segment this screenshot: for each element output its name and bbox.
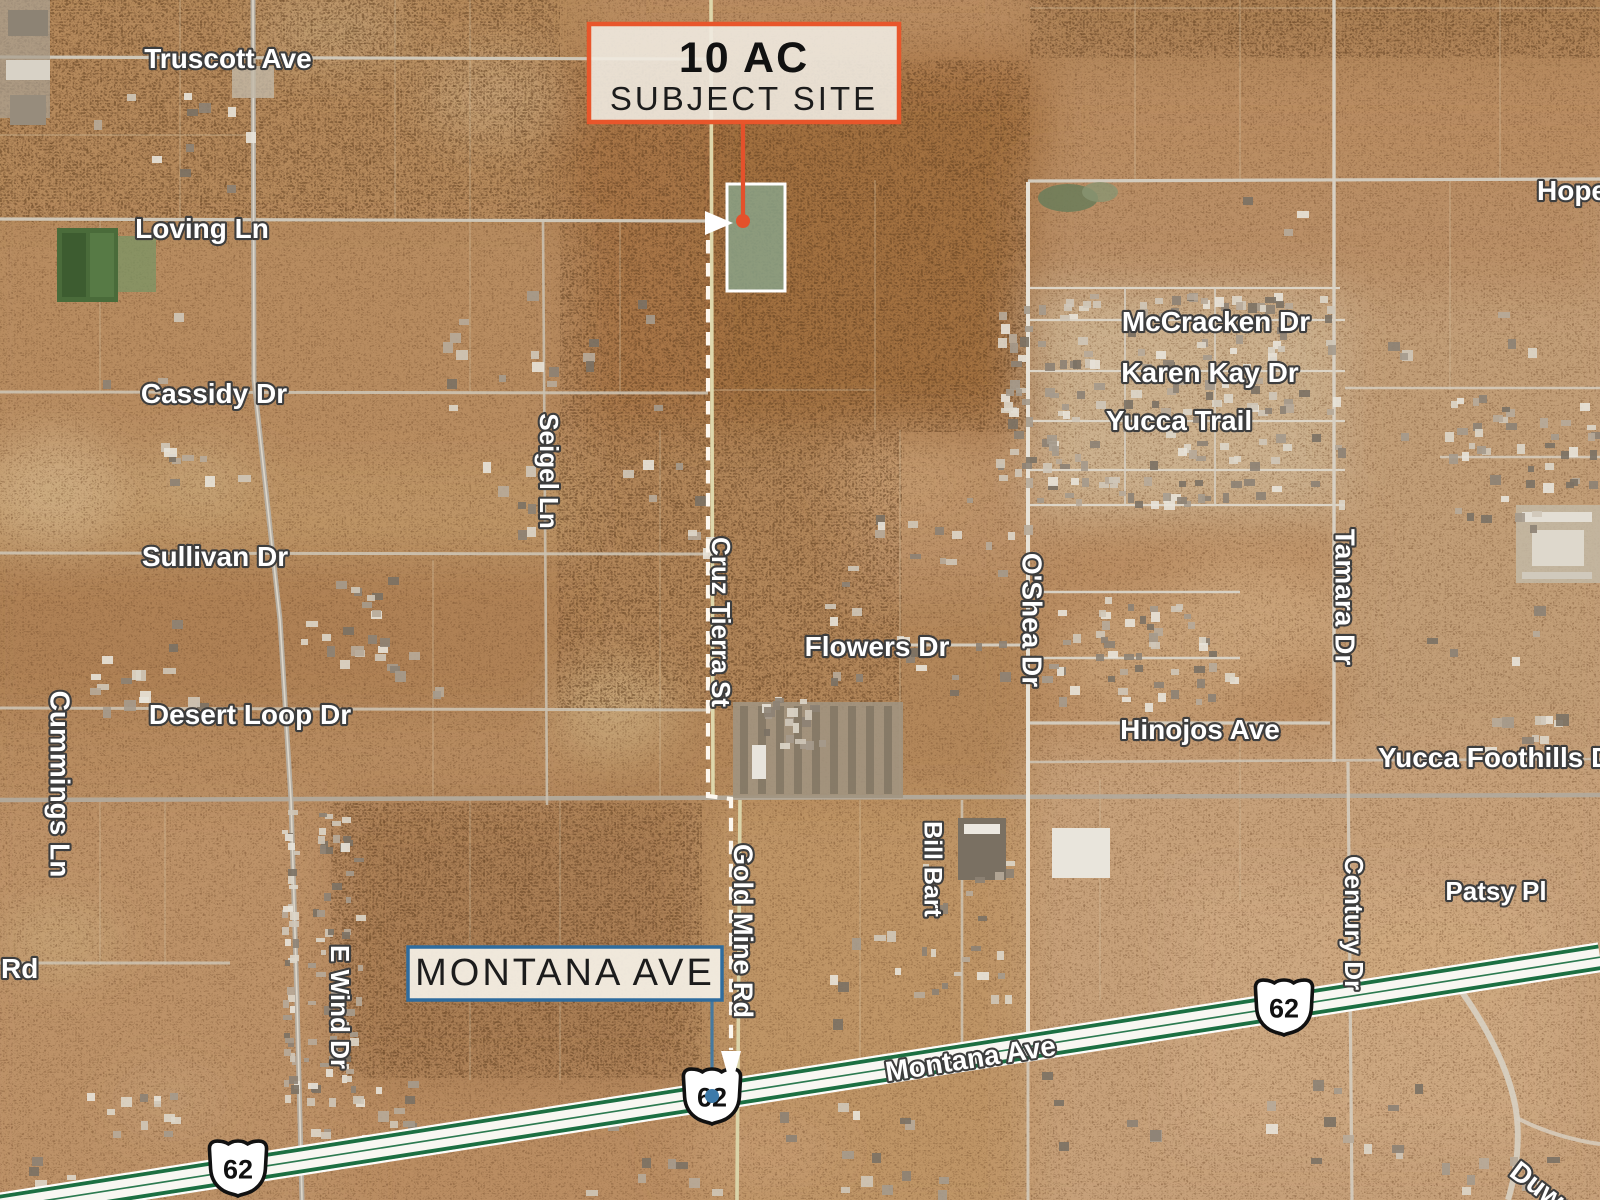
svg-text:Yucca Trail: Yucca Trail xyxy=(1106,405,1252,436)
svg-text:Gold Mine Rd: Gold Mine Rd xyxy=(728,844,758,1018)
svg-text:62: 62 xyxy=(223,1155,253,1185)
svg-text:10 AC: 10 AC xyxy=(679,34,809,82)
svg-text:62: 62 xyxy=(1269,994,1299,1024)
svg-text:Rd: Rd xyxy=(1,953,38,984)
svg-text:Flowers Dr: Flowers Dr xyxy=(805,631,950,662)
svg-text:SUBJECT SITE: SUBJECT SITE xyxy=(610,80,878,117)
svg-text:Loving Ln: Loving Ln xyxy=(135,213,269,244)
svg-text:Truscott Ave: Truscott Ave xyxy=(144,43,312,74)
svg-text:O'Shea Dr: O'Shea Dr xyxy=(1017,553,1048,687)
svg-text:Hinojos Ave: Hinojos Ave xyxy=(1120,714,1280,745)
svg-text:Seigel Ln: Seigel Ln xyxy=(534,413,564,529)
svg-text:Tamara Dr: Tamara Dr xyxy=(1330,529,1361,666)
svg-text:Karen Kay Dr: Karen Kay Dr xyxy=(1121,357,1299,388)
svg-text:Cummings Ln: Cummings Ln xyxy=(45,691,76,878)
svg-text:Bill Bart: Bill Bart xyxy=(918,821,946,918)
svg-text:Sullivan Dr: Sullivan Dr xyxy=(142,541,288,572)
svg-text:MONTANA AVE: MONTANA AVE xyxy=(415,952,715,994)
svg-text:Hopewell: Hopewell xyxy=(1537,175,1600,206)
svg-text:Cassidy Dr: Cassidy Dr xyxy=(141,378,287,409)
svg-text:E Wind Dr: E Wind Dr xyxy=(325,945,355,1069)
svg-text:Century Dr: Century Dr xyxy=(1339,856,1369,990)
svg-text:Yucca Foothills Dr: Yucca Foothills Dr xyxy=(1378,742,1600,773)
svg-text:Cruz Tierra St: Cruz Tierra St xyxy=(706,537,736,707)
svg-text:Patsy Pl: Patsy Pl xyxy=(1445,876,1546,906)
svg-text:McCracken Dr: McCracken Dr xyxy=(1122,306,1310,337)
svg-text:Desert Loop Dr: Desert Loop Dr xyxy=(149,699,351,730)
